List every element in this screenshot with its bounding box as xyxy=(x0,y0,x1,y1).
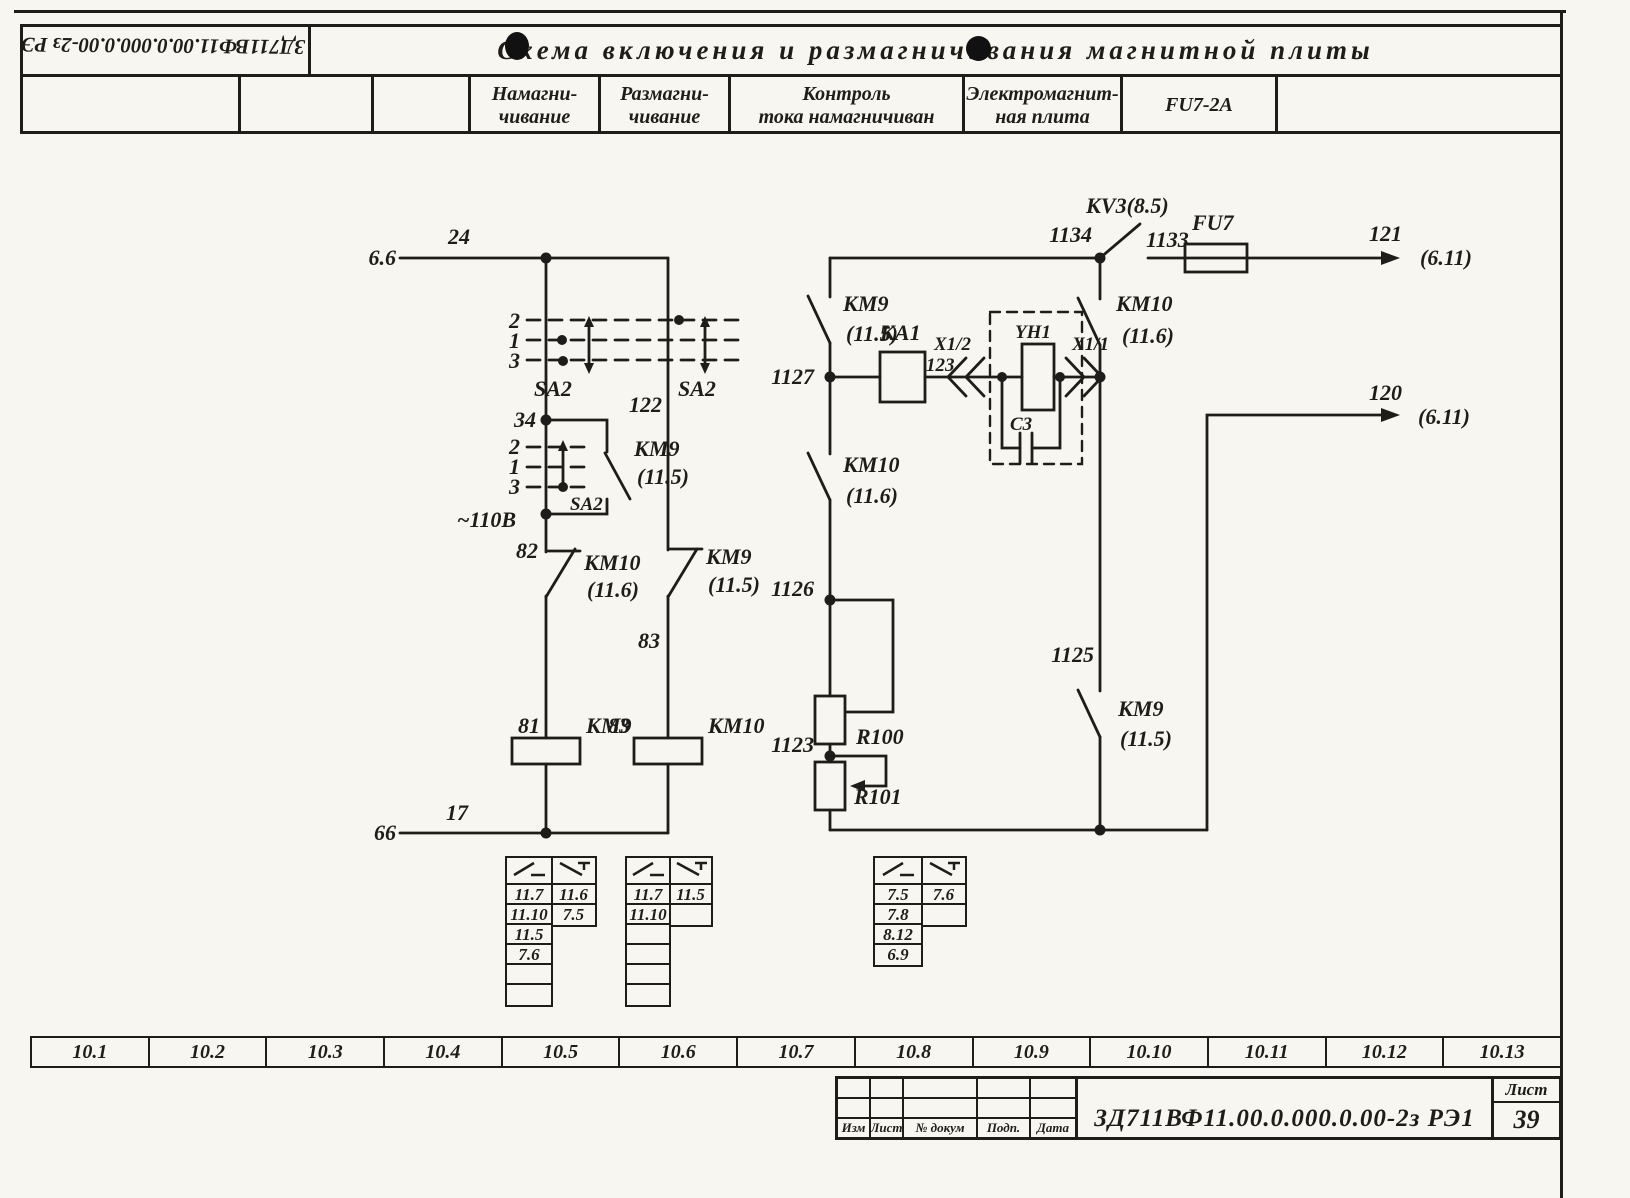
capacitor-designator: С3 xyxy=(1010,414,1032,435)
node-number: 83 xyxy=(608,713,630,738)
contact-sheet-ref: (11.5) xyxy=(1120,726,1172,751)
switch-designator: SA2 xyxy=(678,376,716,401)
no-contacts-column: 11.7 11.10 xyxy=(625,856,671,1007)
node-number: 82 xyxy=(516,538,538,563)
contact-designator: КМ9 xyxy=(633,436,679,461)
contact-position-label: 3 xyxy=(508,474,520,499)
node-number: 1133 xyxy=(1146,227,1189,252)
zone-cell: 10.9 xyxy=(974,1038,1092,1066)
zone-cell: 10.2 xyxy=(150,1038,268,1066)
nc-contacts-column: 11.6 7.5 xyxy=(551,856,597,927)
zone-cell: 10.7 xyxy=(738,1038,856,1066)
title-block: Изм Лист № докум Подп. Дата ЗД711ВФ11.00… xyxy=(835,1076,1562,1140)
nc-contact-symbol xyxy=(923,858,965,885)
contact-ref-cell: 7.5 xyxy=(553,905,595,925)
contact-ref-cell: 11.10 xyxy=(627,905,669,925)
fuse-designator: FU7 xyxy=(1191,210,1235,235)
zone-cell: 10.4 xyxy=(385,1038,503,1066)
contact-ref-cell: 8.12 xyxy=(875,925,921,945)
contact-ref-cell: 11.5 xyxy=(507,925,551,945)
km10-no-contact-mid: КМ10 (11.6) xyxy=(808,377,899,508)
document-number: ЗД711ВФ11.00.0.000.0.00-2з РЭ1 xyxy=(1078,1079,1491,1137)
zone-cell: 10.10 xyxy=(1091,1038,1209,1066)
contact-ref-cell: 6.9 xyxy=(875,945,921,965)
contact-designator: КМ9 xyxy=(705,544,751,569)
left-control-circuit: 6.6 24 xyxy=(369,224,765,845)
zone-cell: 10.11 xyxy=(1209,1038,1327,1066)
sheet-label: Лист xyxy=(1494,1079,1559,1103)
nc-contacts-column: 11.5 xyxy=(669,856,713,927)
contact-ref-cell xyxy=(627,965,669,985)
no-contact-symbol xyxy=(627,858,669,885)
wire-number-label: 17 xyxy=(446,800,469,825)
contact-ref-cell xyxy=(627,945,669,965)
nc-contact-symbol xyxy=(553,858,595,885)
no-contact-symbol xyxy=(875,858,921,885)
contact-sheet-ref: (11.6) xyxy=(846,483,898,508)
contact-ref-cell xyxy=(507,965,551,985)
contact-ref-cell xyxy=(671,905,711,925)
km9-no-contact: КМ9 (11.5) xyxy=(808,258,898,377)
ka1-coil xyxy=(880,352,925,402)
wire-ref-label: 66 xyxy=(374,820,396,845)
resistor-designator: R100 xyxy=(855,724,904,749)
contact-designator: КМ10 xyxy=(583,550,640,575)
contact-sheet-ref: (11.6) xyxy=(1122,323,1174,348)
sa2-selector-switch: 2 1 3 SA2 SA2 xyxy=(508,308,745,401)
km10-nc-contact: 82 КМ10 (11.6) xyxy=(516,538,640,602)
contact-ref-cell: 11.5 xyxy=(671,885,711,905)
node-number: 34 xyxy=(513,407,536,432)
coil-designator: YH1 xyxy=(1015,322,1051,343)
contact-sheet-ref: (11.5) xyxy=(637,464,689,489)
no-contacts-column: 11.7 11.10 11.5 7.6 xyxy=(505,856,553,1007)
no-contacts-column: 7.5 7.8 8.12 6.9 xyxy=(873,856,923,967)
zone-cell: 10.8 xyxy=(856,1038,974,1066)
contact-ref-cell: 7.6 xyxy=(923,885,965,905)
coil-designator: КМ10 xyxy=(707,713,764,738)
switch-designator: SA2 xyxy=(534,376,572,401)
zone-strip: 10.1 10.2 10.3 10.4 10.5 10.6 10.7 10.8 … xyxy=(30,1036,1562,1068)
schematic-canvas: 6.6 24 xyxy=(0,0,1630,1198)
wire-number-label: 24 xyxy=(447,224,470,249)
contact-position-label: 3 xyxy=(508,348,520,373)
drawing-sheet: ЗД711ВФ11.00.0.000.0.00-2з РЭ1 Схема вкл… xyxy=(0,0,1630,1198)
sheet-number: 39 xyxy=(1494,1103,1559,1137)
sheet-destination-ref: (6.11) xyxy=(1420,245,1472,270)
zone-cell: 10.13 xyxy=(1444,1038,1560,1066)
voltage-label: ~110В xyxy=(457,507,516,532)
resistor-designator: R101 xyxy=(853,784,902,809)
contact-ref-cell: 7.8 xyxy=(875,905,921,925)
rev-label-podp: Подп. xyxy=(978,1119,1031,1137)
sheet-destination-ref: (6.11) xyxy=(1418,404,1470,429)
contact-ref-cell xyxy=(627,925,669,945)
zone-cell: 10.6 xyxy=(620,1038,738,1066)
contact-ref-cell xyxy=(627,985,669,1005)
no-contact-symbol xyxy=(507,858,551,885)
wire-ref-label: 6.6 xyxy=(369,245,397,270)
node-number: 1126 xyxy=(771,576,814,601)
contact-ref-cell: 7.5 xyxy=(875,885,921,905)
contact-designator: КМ10 xyxy=(1115,291,1172,316)
sheet-cell: Лист 39 xyxy=(1491,1079,1559,1137)
contact-designator: КV3(8.5) xyxy=(1085,193,1169,218)
contact-designator: КМ10 xyxy=(842,452,899,477)
node-number: 1123 xyxy=(771,732,814,757)
switch-designator: SA2 xyxy=(570,494,603,515)
wire-number-label: 83 xyxy=(638,628,660,653)
zone-cell: 10.3 xyxy=(267,1038,385,1066)
right-plate-circuit: 1134 КV3(8.5) 1133 FU7 121 (6.11) КМ9 (1… xyxy=(771,193,1472,836)
km9-no-contact-bottom: 1125 КМ9 (11.5) xyxy=(1051,377,1172,830)
contact-ref-cell: 7.6 xyxy=(507,945,551,965)
zone-cell: 10.12 xyxy=(1327,1038,1445,1066)
nc-contact-symbol xyxy=(671,858,711,885)
node-number: 81 xyxy=(518,713,540,738)
contact-ref-cell: 11.7 xyxy=(507,885,551,905)
contact-ref-cell xyxy=(507,985,551,1005)
node-number: 1125 xyxy=(1051,642,1094,667)
sa2-km9-parallel-block: 34 2 1 3 SA2 КМ9 (11.5) ~110В xyxy=(457,407,689,532)
contact-designator: КМ9 xyxy=(1117,696,1163,721)
rev-label-docnum: № докум xyxy=(904,1119,978,1137)
yh1-coil xyxy=(1022,344,1054,410)
contact-sheet-ref: (11.6) xyxy=(587,577,639,602)
connector-designator: X1/1 xyxy=(1071,334,1109,355)
contact-ref-cell: 11.7 xyxy=(627,885,669,905)
node-number: 1127 xyxy=(771,364,815,389)
contact-sheet-ref: (11.5) xyxy=(708,572,760,597)
rev-label-list: Лист xyxy=(871,1119,904,1137)
contact-ref-cell xyxy=(923,905,965,925)
r101-resistor: R101 xyxy=(815,756,902,810)
r100-resistor: R100 xyxy=(815,600,904,749)
rev-label-data: Дата xyxy=(1031,1119,1075,1137)
connector-designator: X1/2 xyxy=(933,334,971,355)
wire-number-label: 120 xyxy=(1369,380,1402,405)
rev-label-izm: Изм xyxy=(838,1119,871,1137)
contact-ref-cell: 11.6 xyxy=(553,885,595,905)
zone-cell: 10.1 xyxy=(32,1038,150,1066)
x1-1-connector: X1/1 xyxy=(1066,334,1109,396)
km10-no-contact-top: КМ10 (11.6) xyxy=(1078,258,1174,377)
km9-nc-contact: КМ9 (11.5) xyxy=(668,544,760,597)
nc-contacts-column: 7.6 xyxy=(921,856,967,927)
wire-number-label: 122 xyxy=(629,392,662,417)
revision-grid: Изм Лист № докум Подп. Дата xyxy=(838,1079,1078,1137)
contact-ref-cell: 11.10 xyxy=(507,905,551,925)
contact-designator: КМ9 xyxy=(842,291,888,316)
zone-cell: 10.5 xyxy=(503,1038,621,1066)
wire-number-label: 121 xyxy=(1369,221,1402,246)
c3-capacitor: С3 xyxy=(1002,377,1060,463)
node-number: 1134 xyxy=(1049,222,1092,247)
coil-designator: КА1 xyxy=(879,320,921,345)
